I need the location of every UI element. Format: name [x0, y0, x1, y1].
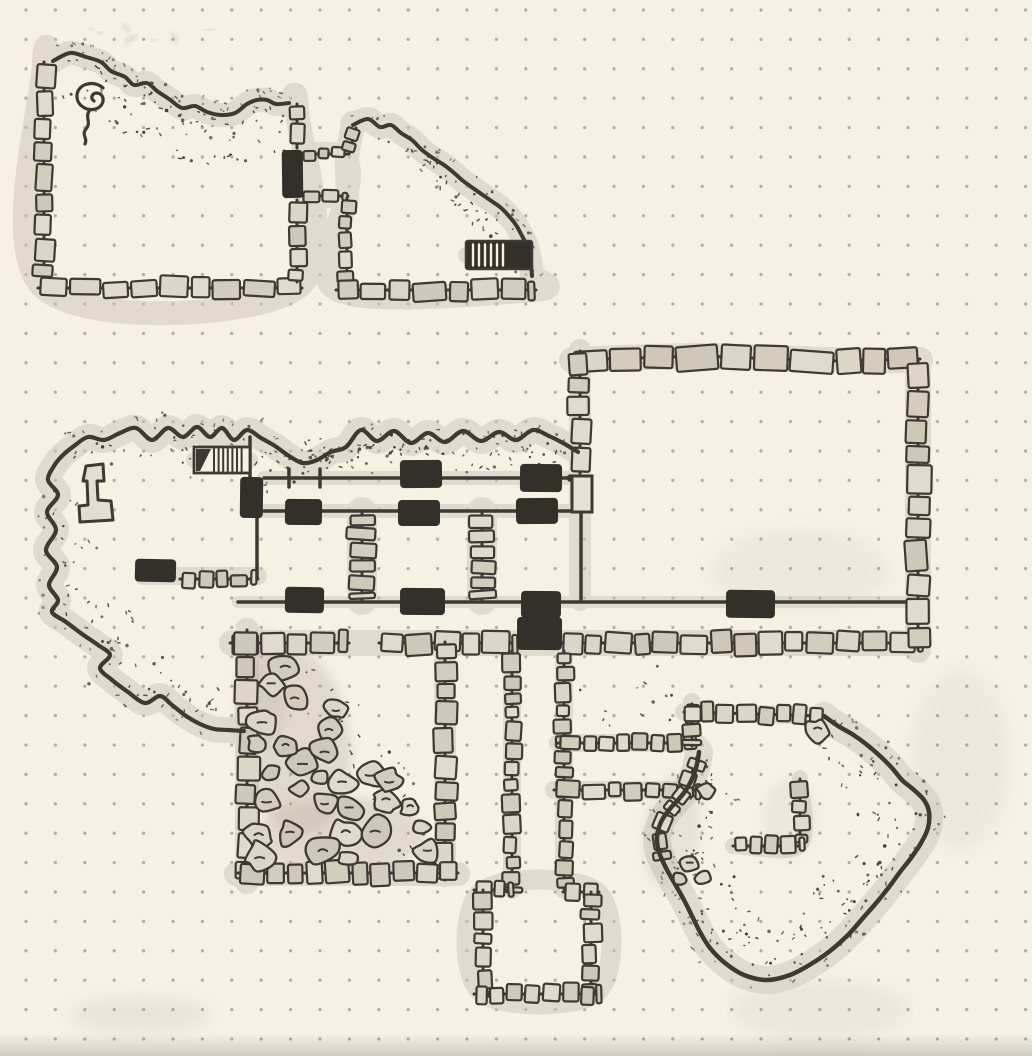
stone-wall [572, 344, 920, 374]
door-icon [401, 461, 441, 487]
stone-wall [733, 835, 805, 853]
stone-wall [567, 351, 591, 481]
door-icon [401, 589, 444, 614]
door-icon [136, 560, 175, 582]
door-icon [518, 618, 561, 649]
door-icon [521, 465, 561, 491]
door-icon [522, 592, 560, 617]
door-icon [727, 591, 774, 617]
dungeon-map-canvas [0, 0, 1032, 1056]
door-icon [241, 478, 262, 517]
stone-wall [346, 513, 377, 600]
door-icon [286, 588, 323, 613]
stone-wall [558, 733, 698, 752]
page-bottom-shadow [0, 1034, 1032, 1056]
door-icon [399, 501, 439, 525]
stone-wall [469, 513, 496, 600]
stairs-icon [466, 241, 532, 269]
stone-wall [32, 62, 56, 278]
door-icon [286, 500, 321, 524]
stone-wall [290, 104, 305, 148]
door-icon [283, 151, 303, 197]
scanned-notebook-page [0, 0, 1032, 1056]
stone-wall [682, 704, 701, 746]
stone-wall [904, 361, 932, 649]
door-icon [517, 499, 557, 523]
stairs-icon [194, 447, 250, 473]
